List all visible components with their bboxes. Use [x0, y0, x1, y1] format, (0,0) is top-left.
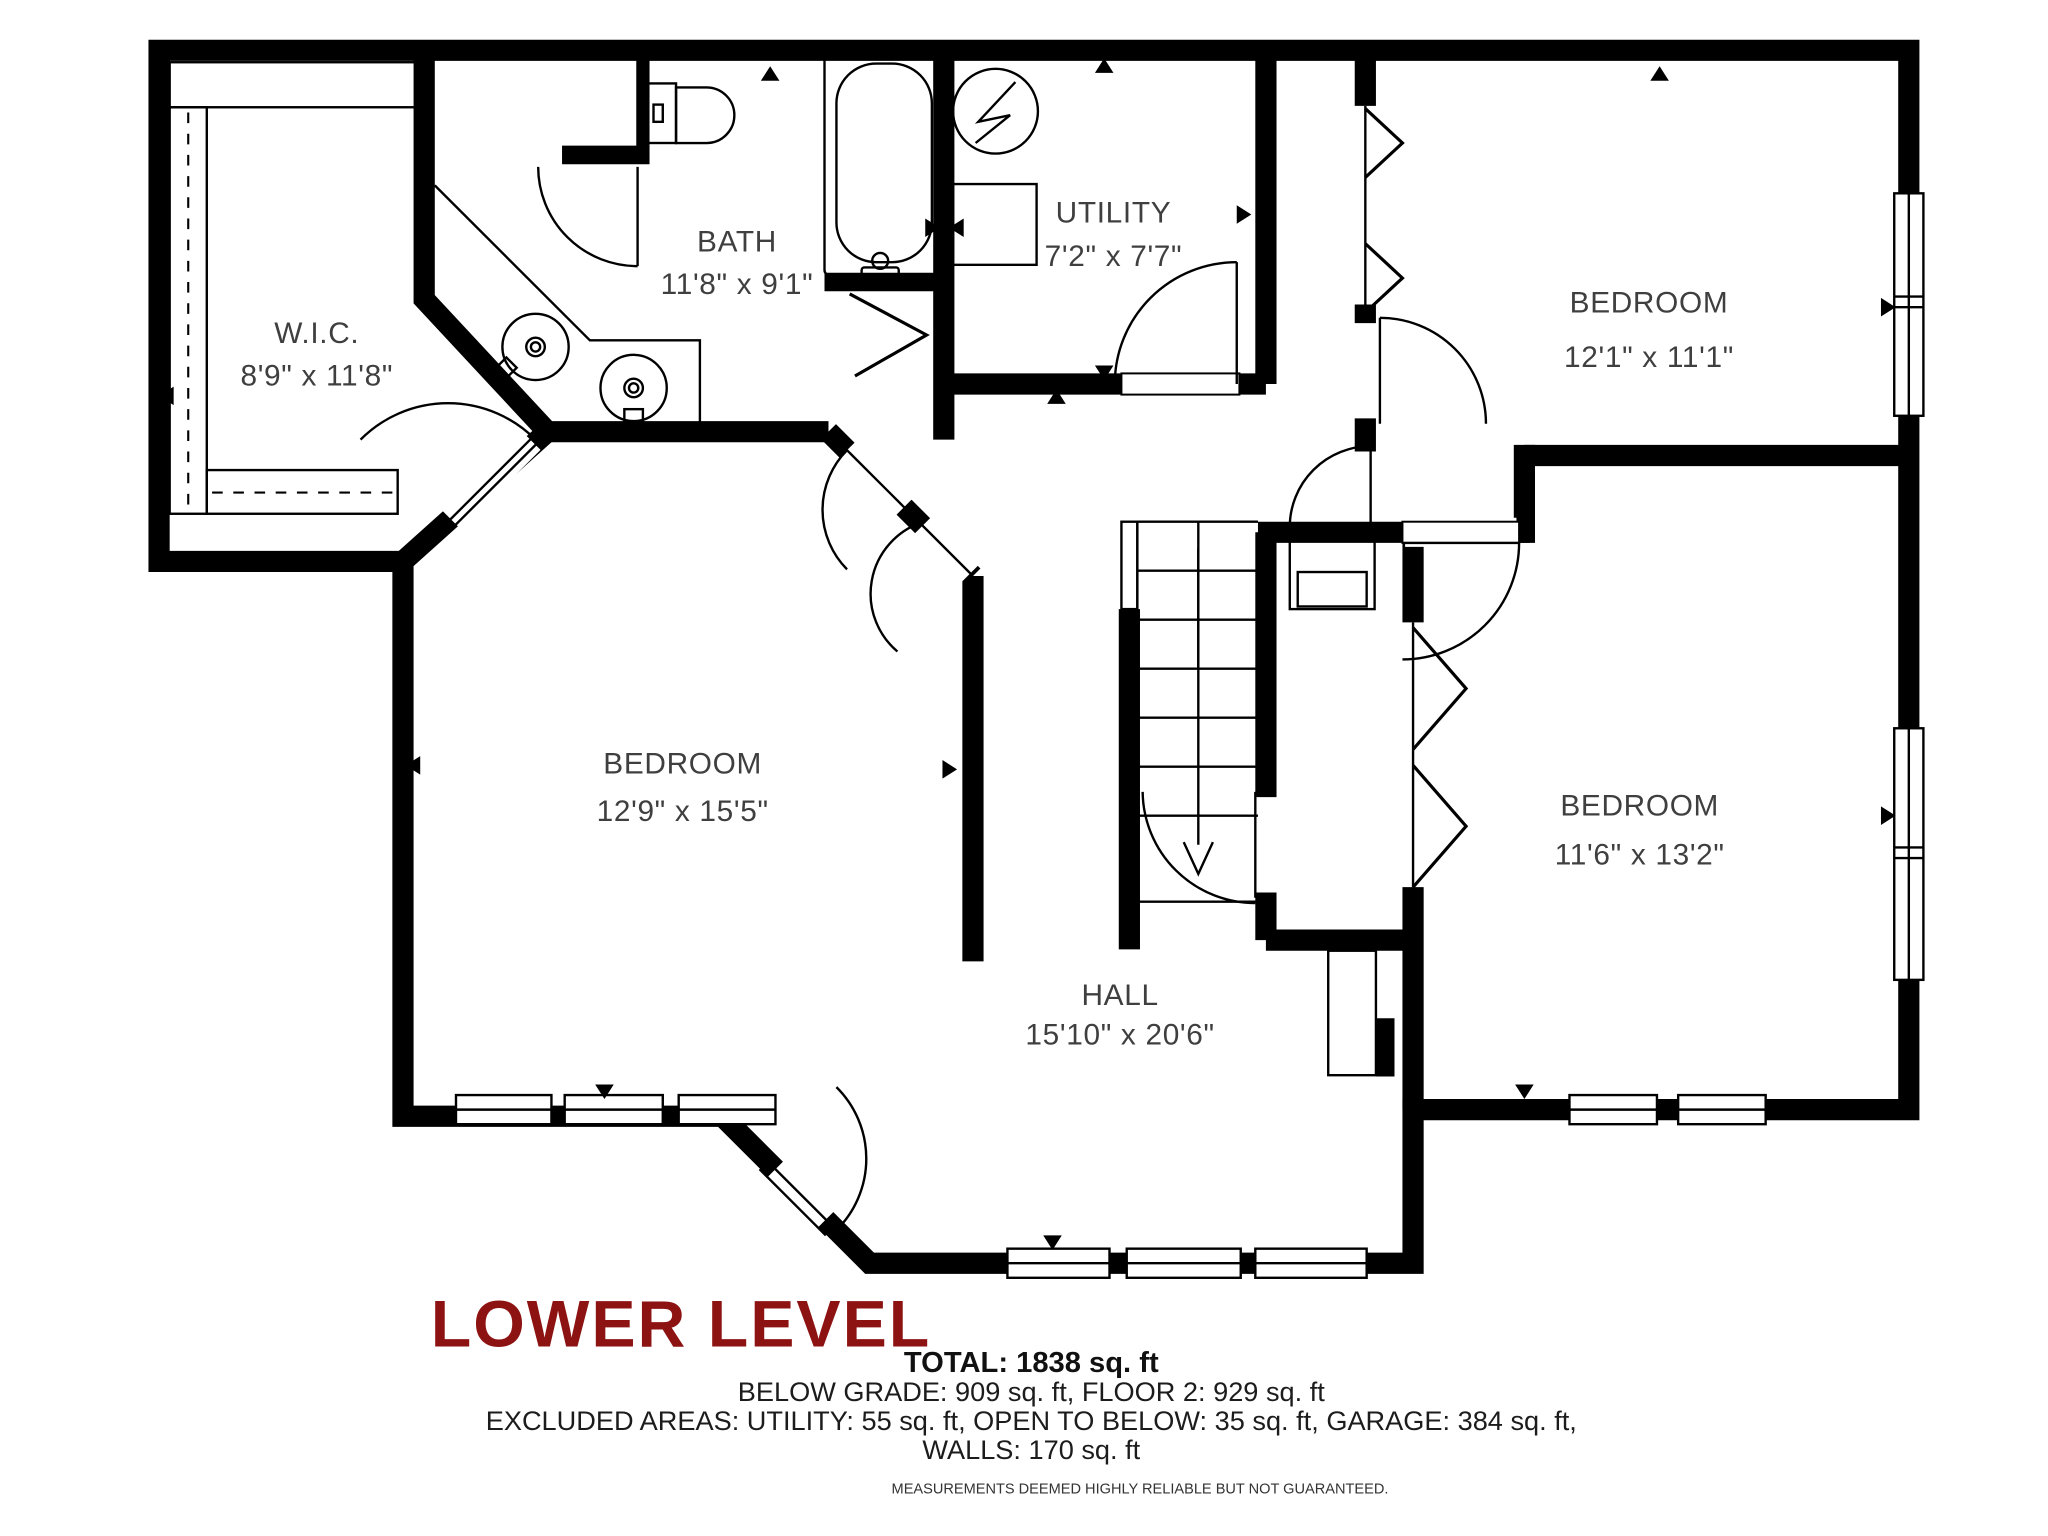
toilet-icon — [648, 83, 734, 143]
window-bedroom-right — [1894, 728, 1923, 980]
room-label-wic: W.I.C. — [274, 317, 359, 350]
excluded-areas-line: EXCLUDED AREAS: UTILITY: 55 sq. ft, OPEN… — [486, 1405, 1577, 1436]
corridor-door — [1290, 446, 1371, 527]
sink-icon — [496, 314, 569, 380]
window-bedroom-tr — [1894, 193, 1923, 415]
room-label-utility: UTILITY — [1056, 196, 1172, 229]
wic-right-wall — [424, 50, 547, 431]
below-grade-line: BELOW GRADE: 909 sq. ft, FLOOR 2: 929 sq… — [738, 1376, 1326, 1407]
room-dims-bath: 11'8" x 9'1" — [661, 268, 814, 301]
bedroom-tr-door — [1380, 318, 1486, 424]
disclaimer: MEASUREMENTS DEEMED HIGHLY RELIABLE BUT … — [892, 1482, 1389, 1498]
toilet-room-door — [538, 167, 637, 266]
window-bedroom-left-3 — [679, 1095, 776, 1124]
bifold-bath-closet — [850, 294, 927, 376]
floorplan-svg: W.I.C. 8'9" x 11'8" BATH 11'8" x 9'1" UT… — [0, 0, 2048, 1536]
wic-shelving — [170, 62, 427, 514]
room-dims-wic: 8'9" x 11'8" — [240, 359, 393, 392]
window-bay-2 — [1127, 1249, 1241, 1278]
walls — [159, 50, 1909, 1263]
stair-arrowhead — [1184, 842, 1213, 874]
room-label-bath: BATH — [697, 226, 777, 259]
room-label-hall: HALL — [1081, 979, 1158, 1012]
chase-duct — [1328, 951, 1376, 1075]
utility-door — [1115, 262, 1240, 394]
window-bay-3 — [1255, 1249, 1366, 1278]
room-dims-utility: 7'2" x 7'7" — [1045, 240, 1183, 273]
room-dims-bedroom-tr: 12'1" x 11'1" — [1564, 341, 1734, 374]
room-label-bedroom-right: BEDROOM — [1560, 790, 1719, 823]
water-heater-icon — [953, 69, 1038, 154]
closet-shelf — [1290, 540, 1375, 609]
window-bedroom-left-2 — [565, 1095, 663, 1124]
room-dims-bedroom-right: 11'6" x 13'2" — [1555, 839, 1725, 872]
stairs — [1121, 522, 1258, 902]
room-dims-hall: 15'10" x 20'6" — [1025, 1019, 1214, 1052]
room-dims-bedroom-left: 12'9" x 15'5" — [597, 795, 769, 828]
walls-area-line: WALLS: 170 sq. ft — [922, 1434, 1140, 1465]
room-label-bedroom-tr: BEDROOM — [1570, 287, 1729, 320]
bifold-bedroom-right — [1413, 622, 1466, 887]
floorplan-page: W.I.C. 8'9" x 11'8" BATH 11'8" x 9'1" UT… — [0, 0, 2048, 1536]
window-bedroom-right-bottom-2 — [1678, 1095, 1765, 1124]
bifold-bedroom-tr — [1365, 106, 1402, 313]
room-label-bedroom-left: BEDROOM — [603, 747, 762, 780]
total-area-line: TOTAL: 1838 sq. ft — [904, 1347, 1159, 1379]
window-bedroom-left-1 — [456, 1095, 551, 1124]
furnace-icon — [953, 184, 1037, 265]
bathtub-icon — [825, 53, 944, 279]
sink-icon-2 — [600, 355, 666, 428]
room-labels: W.I.C. 8'9" x 11'8" BATH 11'8" x 9'1" UT… — [240, 196, 1733, 1051]
page-title: LOWER LEVEL — [431, 1288, 931, 1362]
footer: LOWER LEVEL TOTAL: 1838 sq. ft BELOW GRA… — [431, 1288, 1577, 1498]
window-bedroom-right-bottom-1 — [1569, 1095, 1656, 1124]
window-bay-1 — [1007, 1249, 1109, 1278]
vanity-counter — [435, 185, 700, 425]
